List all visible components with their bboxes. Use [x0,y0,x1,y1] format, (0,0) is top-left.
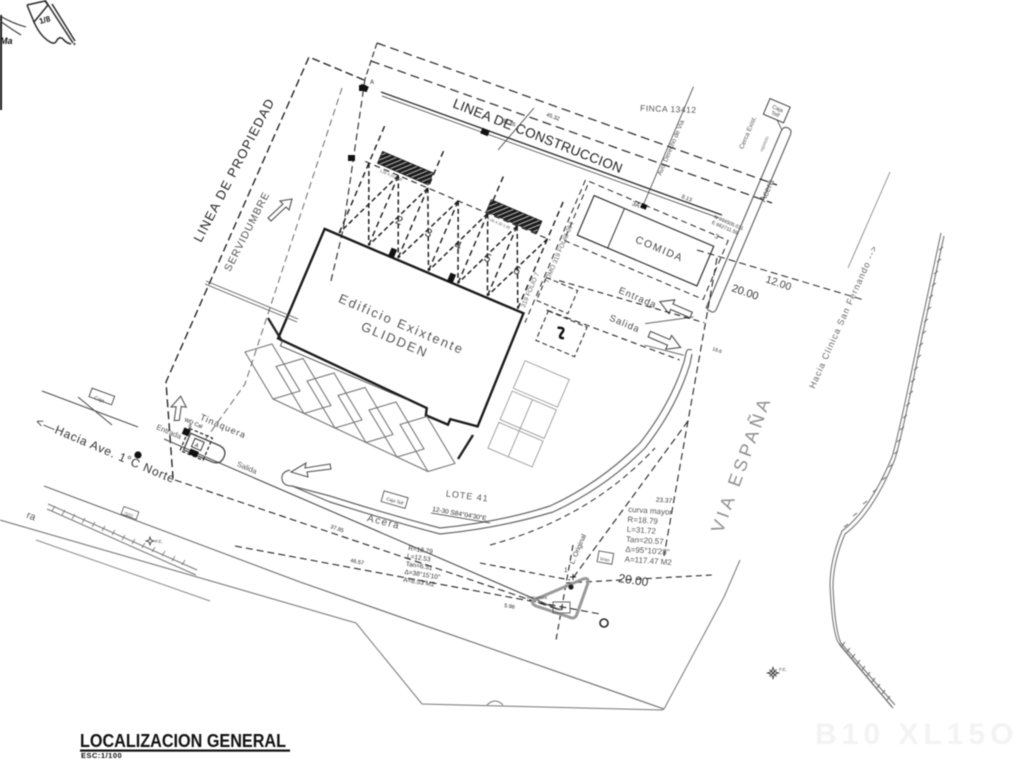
svg-text:LOCALIZACION GENERAL: LOCALIZACION GENERAL [80,731,286,751]
svg-text:23.37: 23.37 [656,497,673,505]
svg-text:1: 1 [564,567,568,574]
svg-text:P.E.: P.E. [155,539,163,544]
svg-text:FINCA 13412: FINCA 13412 [640,103,697,115]
svg-text:B10 XL15O: B10 XL15O [815,718,1018,751]
svg-text:ESC:1/100: ESC:1/100 [81,751,122,760]
svg-text:A: A [370,80,374,86]
svg-text:caja: caja [556,606,564,611]
svg-text:P.E.: P.E. [779,667,787,672]
svg-text:estructura: estructura [527,595,548,600]
svg-text:Ma: Ma [0,36,13,46]
